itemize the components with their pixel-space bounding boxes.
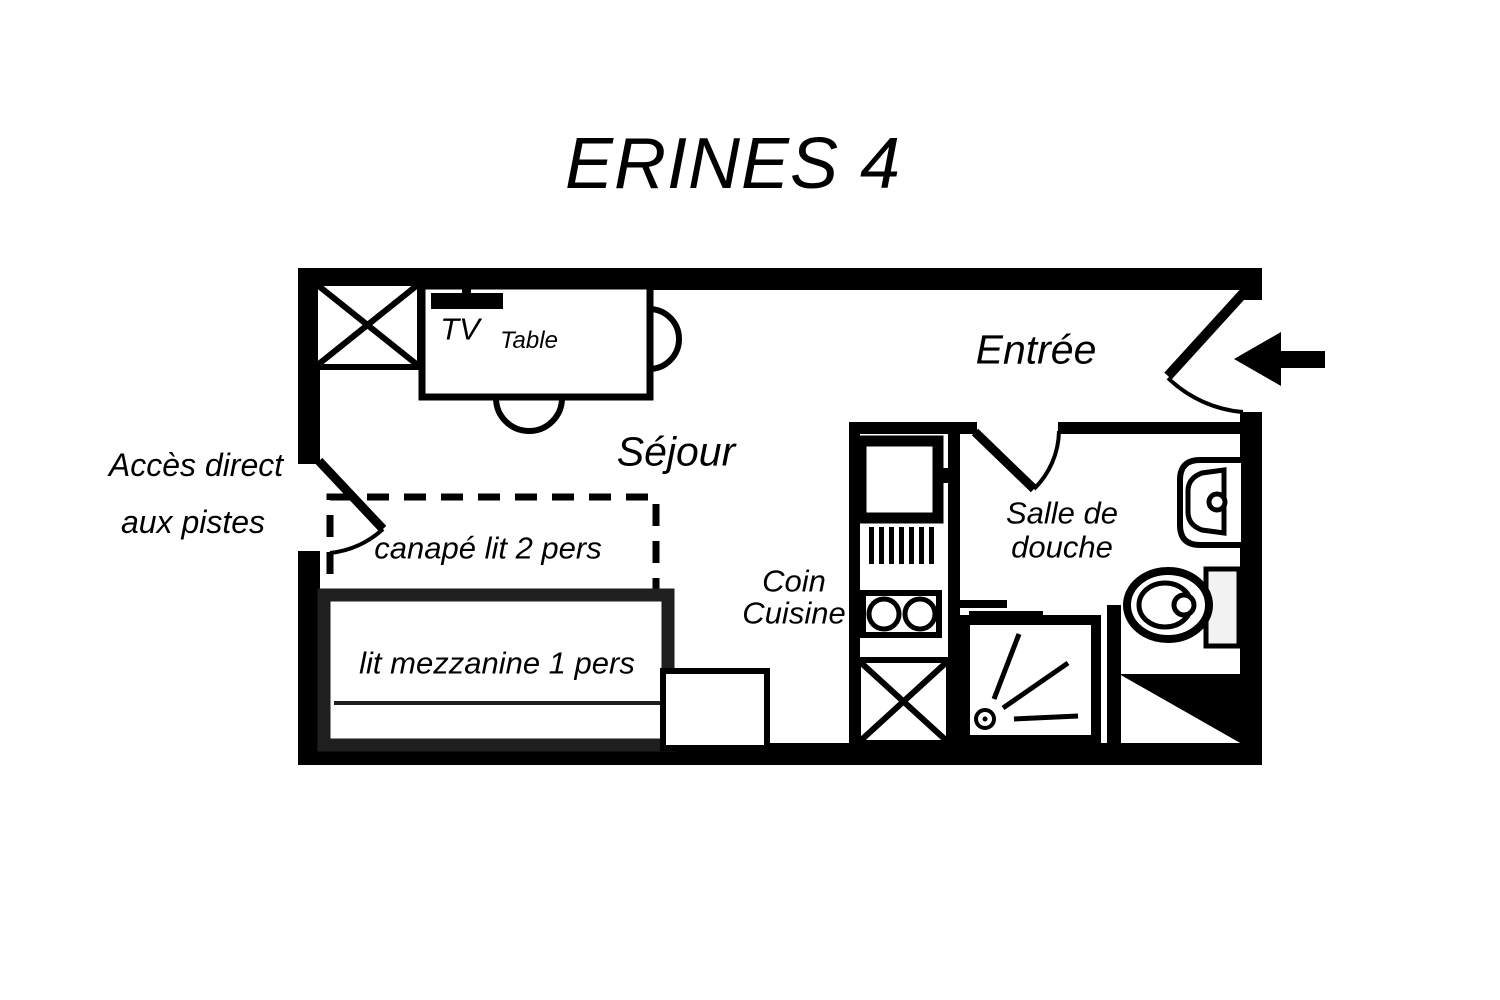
page-title: ERINES 4 bbox=[565, 128, 901, 200]
tv-label: TV bbox=[440, 314, 480, 345]
wall-shower-toilet-divider bbox=[1107, 605, 1121, 745]
shower-room-label-line1: Salle de bbox=[1006, 498, 1118, 529]
wall-kitchen-top bbox=[849, 422, 977, 434]
room-label-sejour: Séjour bbox=[617, 432, 736, 473]
kitchen-block bbox=[858, 441, 958, 743]
fridge-unit-icon bbox=[861, 441, 938, 518]
table-label: Table bbox=[500, 329, 558, 353]
kitchen-label-line1: Coin bbox=[762, 566, 826, 597]
dish-rack-icon bbox=[869, 527, 934, 564]
wall-bathroom-top bbox=[1058, 422, 1262, 434]
room-label-entree: Entrée bbox=[976, 330, 1097, 371]
corner-wall-triangle bbox=[1119, 674, 1242, 744]
storage-cross bbox=[858, 660, 949, 743]
shower-room-label-line2: douche bbox=[1011, 532, 1113, 563]
bathroom-door-swing bbox=[975, 431, 1059, 489]
hob-two-burners-icon bbox=[863, 593, 939, 635]
washbasin-icon bbox=[1180, 460, 1244, 545]
tv-set-icon bbox=[431, 293, 503, 309]
chair-bottom-icon bbox=[496, 398, 562, 431]
dining-table-group bbox=[422, 283, 679, 431]
shower-screen-bar1 bbox=[957, 600, 1007, 608]
wall-left-lower bbox=[298, 551, 320, 765]
kitchen-label-line2: Cuisine bbox=[742, 598, 845, 629]
bed-label: lit mezzanine 1 pers bbox=[359, 648, 635, 679]
sofa-bed-label: canapé lit 2 pers bbox=[374, 533, 601, 564]
shower-group bbox=[957, 600, 1096, 740]
access-label-line1: Accès direct bbox=[109, 449, 283, 481]
shower-tray bbox=[965, 620, 1096, 740]
entrance-door-swing bbox=[1168, 287, 1249, 412]
entrance-arrow bbox=[1234, 332, 1325, 386]
side-unit bbox=[663, 671, 767, 748]
floor-plan-page: ERINES 4 Accès direct aux pistes TV Tabl… bbox=[0, 0, 1500, 1000]
fridge-handle bbox=[934, 468, 958, 483]
closet-cross bbox=[315, 283, 420, 367]
access-label-line2: aux pistes bbox=[121, 506, 265, 538]
toilet-icon bbox=[1127, 569, 1239, 646]
